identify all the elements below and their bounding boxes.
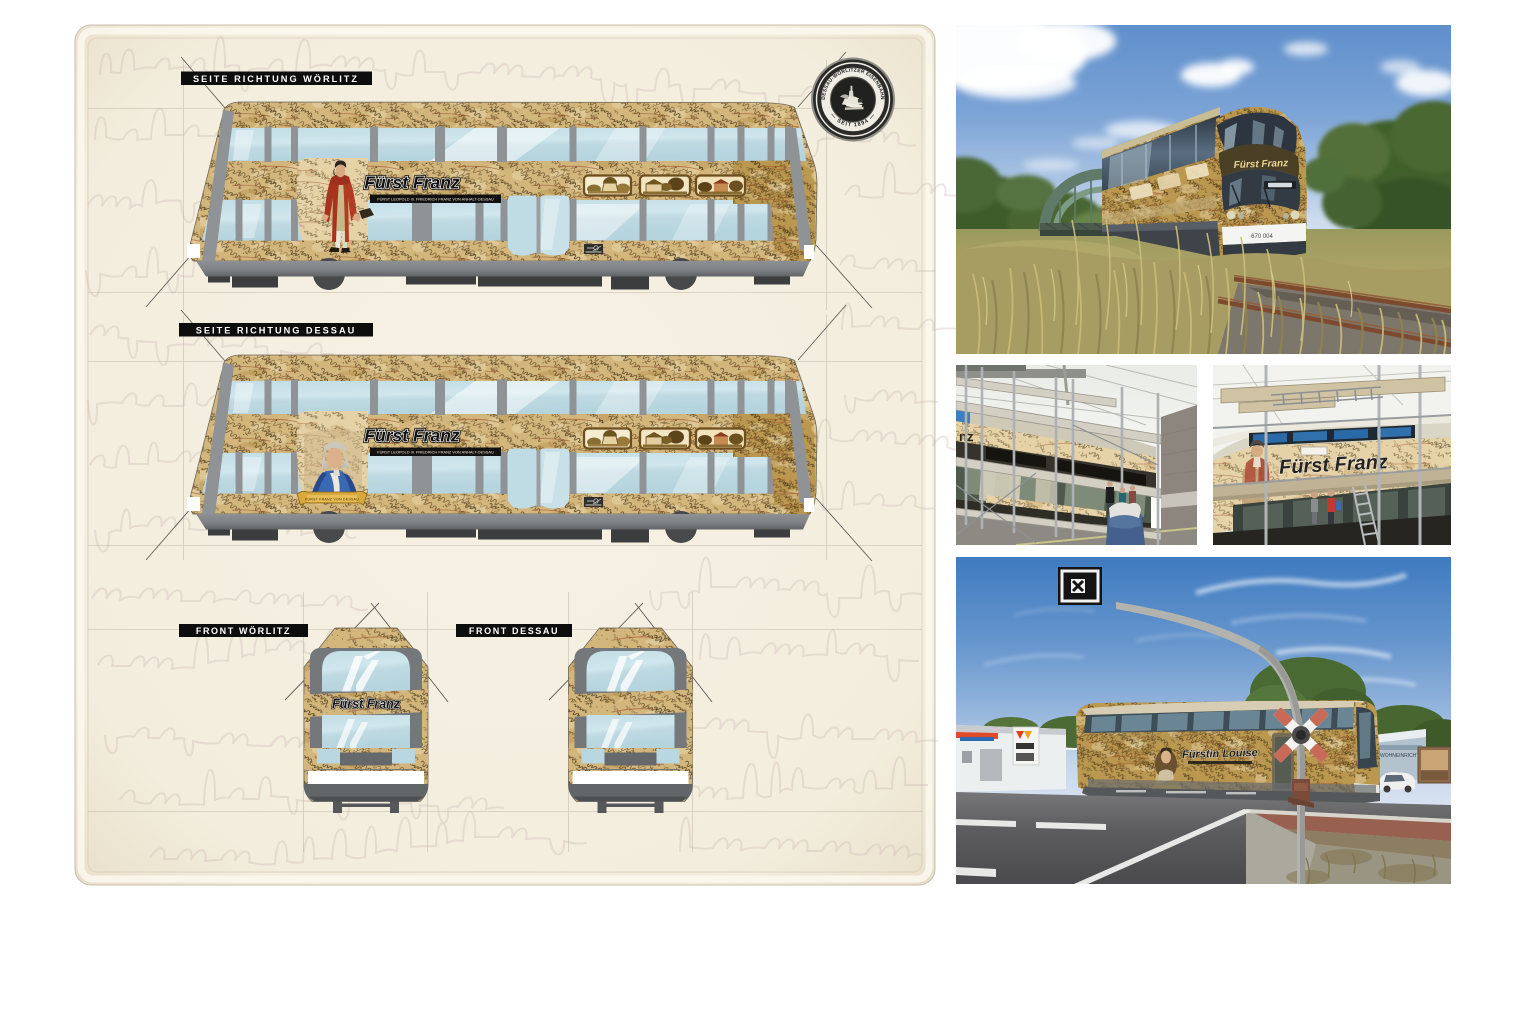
- svg-text:FRONT DESSAU: FRONT DESSAU: [469, 626, 559, 636]
- svg-text:SEITE RICHTUNG WÖRLITZ: SEITE RICHTUNG WÖRLITZ: [193, 74, 359, 84]
- svg-text:Fürstin Louise: Fürstin Louise: [1182, 747, 1258, 761]
- svg-text:Fürst Franz: Fürst Franz: [1234, 158, 1289, 171]
- svg-text:EXPRESS FR.: EXPRESS FR.: [1104, 731, 1184, 746]
- svg-text:SEITE RICHTUNG DESSAU: SEITE RICHTUNG DESSAU: [196, 326, 356, 336]
- svg-text:FRONT WÖRLITZ: FRONT WÖRLITZ: [196, 626, 291, 636]
- svg-text:Fürst Franz: Fürst Franz: [332, 697, 401, 711]
- svg-text:670 004: 670 004: [1251, 234, 1273, 240]
- svg-text:FÜRST FRANZ VON DESSAU: FÜRST FRANZ VON DESSAU: [305, 497, 359, 501]
